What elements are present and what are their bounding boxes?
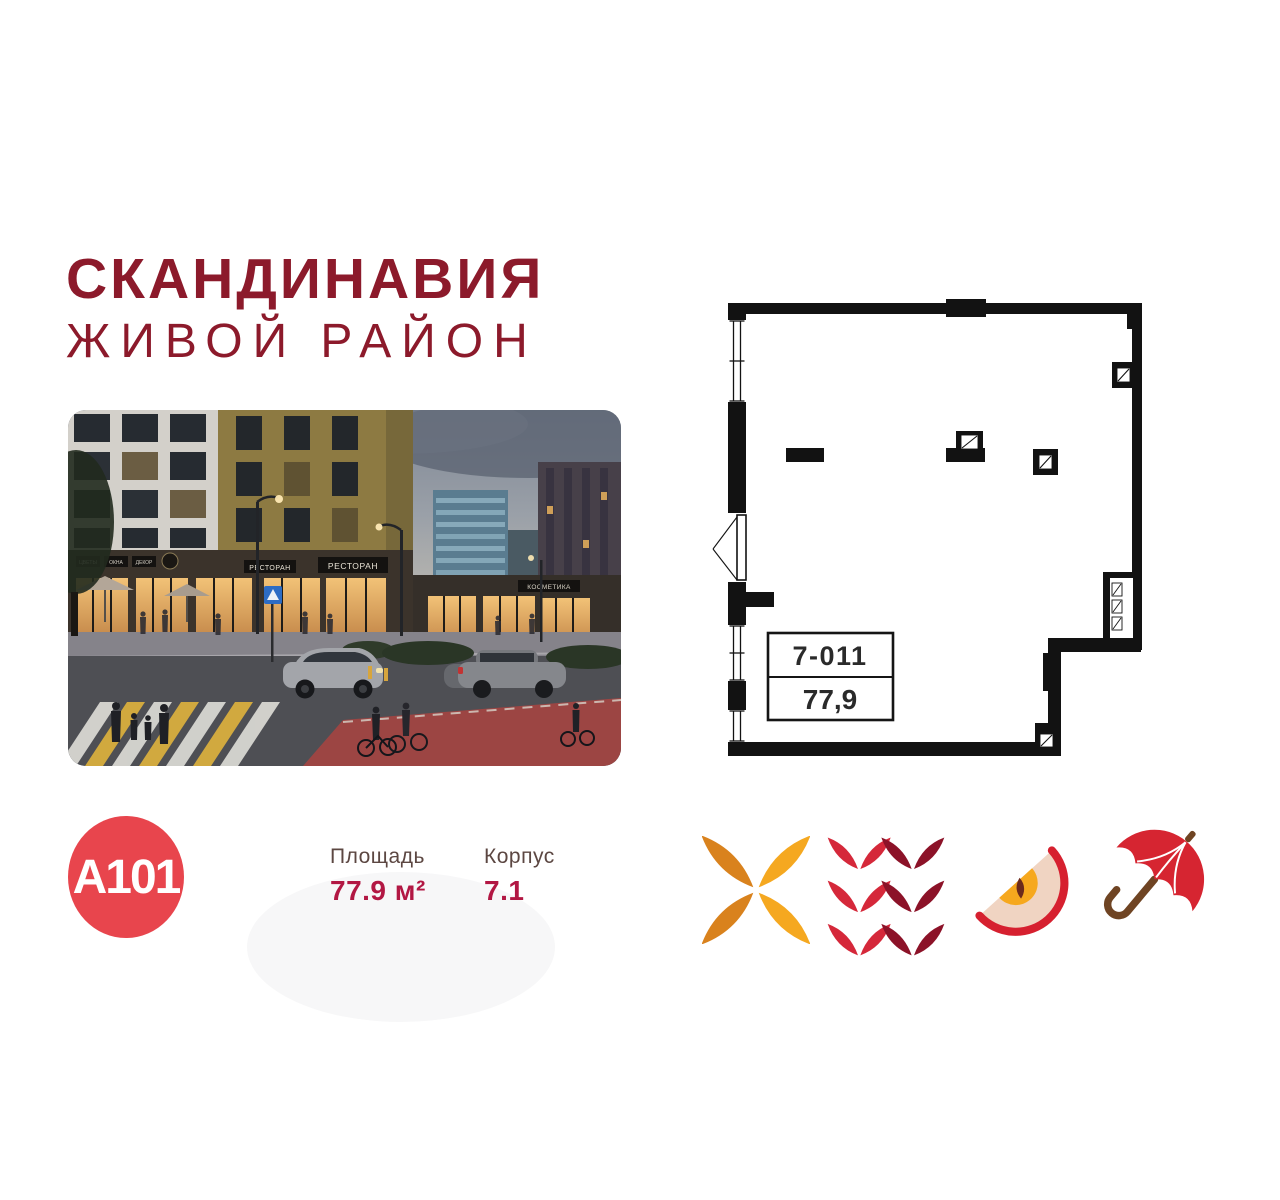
pinwheel-leaves-icon	[702, 836, 810, 944]
berry-leaves-icon	[826, 834, 946, 960]
apple-slice-icon	[960, 830, 1076, 950]
window	[730, 321, 745, 401]
shop-sign-label: ДЕКОР	[136, 560, 153, 566]
street-photo: ЦВЕТЫ ОКНА ДЕКОР РЕСТОРАН РЕСТОРАН КОСМЕ…	[68, 410, 621, 766]
stat-area-value: 77.9 м²	[330, 875, 426, 907]
window	[730, 626, 745, 680]
stat-area-label: Площадь	[330, 845, 426, 869]
developer-logo: A101	[68, 816, 184, 938]
project-subtitle: ЖИВОЙ РАЙОН	[66, 314, 538, 369]
street-scene: ЦВЕТЫ ОКНА ДЕКОР РЕСТОРАН РЕСТОРАН КОСМЕ…	[68, 410, 621, 766]
developer-logo-text: A101	[73, 850, 180, 905]
stat-korpus-label: Корпус	[484, 845, 555, 869]
restaurant-sign: РЕСТОРАН	[328, 561, 378, 571]
cosmetics-sign: КОСМЕТИКА	[527, 584, 571, 591]
unit-area: 77,9	[803, 684, 858, 715]
floor-plan: 7-011 77,9	[712, 290, 1162, 765]
window	[730, 711, 745, 741]
olive-facade	[218, 410, 413, 552]
bush	[382, 641, 474, 665]
tree-trunk	[71, 592, 78, 636]
project-title: СКАНДИНАВИЯ	[66, 246, 544, 312]
unit-number: 7-011	[792, 641, 867, 671]
umbrella-icon	[1090, 822, 1214, 954]
shaft	[1110, 578, 1133, 638]
entrance-door	[713, 515, 746, 580]
stat-area: Площадь 77.9 м²	[330, 845, 426, 907]
shop-sign-label: ОКНА	[109, 560, 123, 566]
restaurant-sign: РЕСТОРАН	[249, 565, 291, 572]
stat-korpus: Корпус 7.1	[484, 845, 555, 907]
unit-label-box: 7-011 77,9	[768, 633, 893, 720]
stat-korpus-value: 7.1	[484, 875, 555, 907]
listing-card: СКАНДИНАВИЯ ЖИВОЙ РАЙОН	[0, 0, 1280, 1200]
